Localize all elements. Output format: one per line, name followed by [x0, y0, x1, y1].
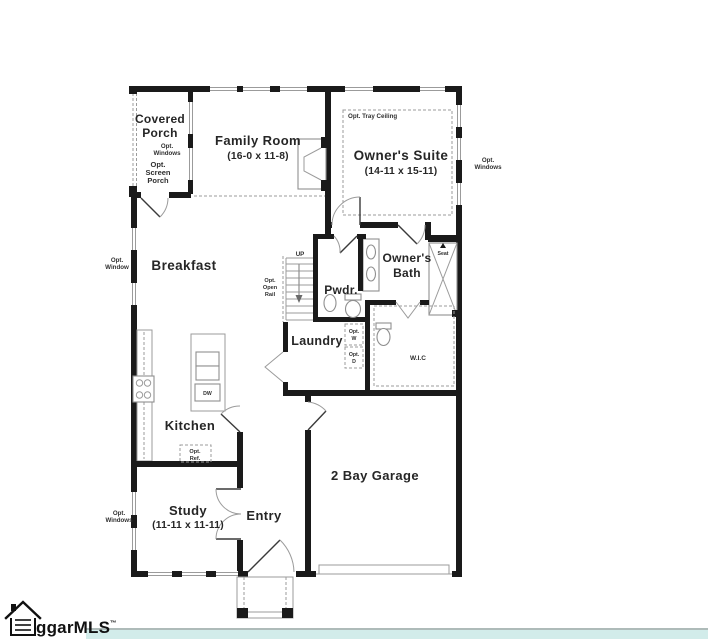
room-label-garage: 2 Bay Garage — [331, 468, 419, 483]
footer-bar — [86, 630, 708, 639]
room-label-pwdr: Pwdr. — [324, 283, 358, 297]
floorplan-drawing: Covered Porch Opt. Windows Opt. Screen P… — [0, 0, 708, 639]
front-stoop — [237, 577, 293, 618]
opt-windows-porch-line1: Opt. — [161, 143, 174, 150]
opt-open-rail-line1: Opt. — [264, 278, 276, 284]
room-dims-family-room: (16-0 x 11-8) — [227, 151, 289, 162]
walk-in-closet: W.I.C — [374, 306, 454, 386]
opt-window-breakfast-line2: Window — [105, 264, 129, 271]
opt-screen-porch-line3: Porch — [147, 176, 169, 185]
opt-open-rail-line2: Open — [263, 285, 278, 291]
room-label-covered-porch-line1: Covered — [135, 112, 185, 126]
opt-windows-suite-line1: Opt. — [482, 157, 495, 164]
study: Study (11-11 x 11-11) — [152, 467, 243, 571]
laundry: Laundry Opt. W Opt. D — [265, 322, 370, 395]
room-label-covered-porch-line2: Porch — [142, 126, 178, 140]
opt-dryer-line1: Opt. — [349, 352, 360, 358]
covered-porch: Covered Porch Opt. Windows Opt. Screen P… — [129, 86, 193, 217]
mls-house-icon — [6, 602, 40, 635]
room-label-owners-suite: Owner's Suite — [354, 148, 449, 163]
mls-logo-text: ggarMLS™ — [36, 618, 117, 637]
room-label-laundry: Laundry — [291, 334, 342, 348]
opt-window-breakfast-line1: Opt. — [111, 257, 124, 264]
garage: 2 Bay Garage — [305, 395, 452, 577]
mls-logo-word: ggarMLS — [36, 618, 110, 637]
footer-divider — [86, 628, 708, 630]
floorplan-image: Covered Porch Opt. Windows Opt. Screen P… — [0, 0, 708, 639]
room-dims-owners-suite: (14-11 x 15-11) — [365, 166, 438, 177]
family-room: Family Room (16-0 x 11-8) — [194, 86, 331, 238]
stairs-up-label: UP — [296, 251, 305, 258]
owners-bath: Seat Owner's Bath — [358, 225, 461, 346]
kitchen: DW Kitchen Opt. Ref. — [131, 330, 243, 467]
room-label-owners-bath-line2: Bath — [393, 266, 421, 280]
opt-tray-ceiling-label: Opt. Tray Ceiling — [348, 113, 397, 120]
footer: ggarMLS™ — [6, 602, 708, 639]
opt-ref-line2: Ref. — [190, 456, 201, 462]
entry: Entry — [246, 508, 294, 572]
room-label-entry: Entry — [246, 508, 282, 523]
room-label-breakfast: Breakfast — [151, 258, 216, 273]
stairs: UP Opt. Open Rail — [263, 251, 313, 322]
opt-open-rail-line3: Rail — [265, 292, 276, 298]
opt-washer-line1: Opt. — [349, 329, 360, 335]
opt-dryer-line2: D — [352, 359, 356, 365]
room-label-kitchen: Kitchen — [165, 418, 215, 433]
shower-seat-label: Seat — [438, 251, 449, 257]
opt-windows-study-line2: Windows — [105, 517, 133, 524]
room-label-wic: W.I.C — [410, 355, 426, 362]
room-label-study: Study — [169, 503, 207, 518]
room-label-family-room: Family Room — [215, 133, 301, 148]
room-dims-study: (11-11 x 11-11) — [152, 520, 224, 531]
dishwasher-label: DW — [203, 391, 212, 397]
room-label-owners-bath-line1: Owner's — [383, 251, 432, 265]
owners-suite: Opt. Tray Ceiling Owner's Suite (14-11 x… — [325, 110, 452, 240]
opt-windows-porch-line2: Windows — [153, 150, 181, 157]
opt-ref-line1: Opt. — [189, 449, 201, 455]
opt-washer-line2: W — [352, 336, 357, 342]
opt-windows-suite-line2: Windows — [474, 164, 502, 171]
mls-trademark: ™ — [110, 620, 117, 627]
opt-windows-study-line1: Opt. — [113, 510, 126, 517]
